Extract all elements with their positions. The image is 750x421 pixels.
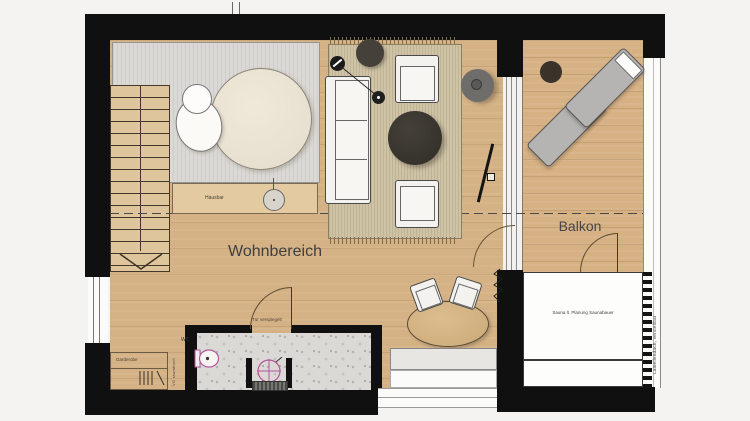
stairs-direction-arrow-icon — [118, 252, 164, 272]
sauna-label: Sauna lt. Planung Saunabauer — [529, 311, 637, 316]
garderobe-label: Garderobe — [116, 358, 138, 363]
wall-bath-right — [371, 325, 382, 390]
wall-bath-top-b — [291, 325, 381, 333]
window-bottom — [378, 388, 497, 408]
sideboard — [390, 348, 497, 370]
sauna-glass-hatch — [643, 272, 652, 388]
hanger-icon — [138, 370, 168, 386]
wall-bottom-left — [85, 390, 378, 415]
coffee-table — [388, 111, 442, 165]
vent-mark-icon — [232, 2, 233, 14]
armchair-top — [395, 55, 439, 103]
toilet-icon — [194, 347, 220, 371]
wall-bottom-right — [497, 387, 655, 412]
egg-chair-cushion — [182, 84, 212, 114]
wall-left-upper — [85, 14, 110, 277]
sauna-block: Sauna lt. Planung Saunabauer — [523, 272, 643, 360]
wc-label: WC — [181, 338, 189, 344]
zigzag-symbol-icon — [492, 268, 504, 304]
window-left — [88, 277, 108, 343]
sideboard-lower — [390, 370, 497, 388]
wall-pillar-top — [497, 14, 523, 77]
staircase — [110, 85, 170, 272]
balcony-label: Balkon — [545, 219, 615, 234]
wall-corner-topright — [643, 14, 665, 58]
stool — [356, 39, 384, 67]
louver-roof-label: Lamellendach, verstellbar — [653, 290, 658, 374]
wall-bath-top-a — [185, 325, 252, 333]
round-bed — [210, 68, 312, 170]
hausbar-label: Hausbar — [205, 196, 224, 202]
sofa — [325, 76, 371, 204]
living-room-label: Wohnbereich — [205, 243, 345, 261]
armchair-bottom — [395, 180, 439, 228]
floor-plan: Hausbar Wohnbereich — [0, 0, 750, 421]
vg-wall-label: VG raumhoch — [172, 344, 176, 386]
shower-mat — [252, 381, 288, 391]
floor-lamp-shade — [372, 91, 385, 104]
rug-fringe-top — [330, 37, 458, 44]
mirror-door-label: Tür verspiegelt — [252, 318, 282, 323]
hausbar-counter: Hausbar — [172, 183, 318, 214]
balcony-side-table — [540, 61, 562, 83]
round-stove — [461, 69, 494, 102]
sauna-bench — [523, 360, 643, 387]
rug-fringe-bottom — [330, 237, 458, 244]
bar-sink-icon — [263, 189, 285, 211]
tv — [474, 143, 502, 205]
vent-mark-icon — [239, 2, 240, 14]
